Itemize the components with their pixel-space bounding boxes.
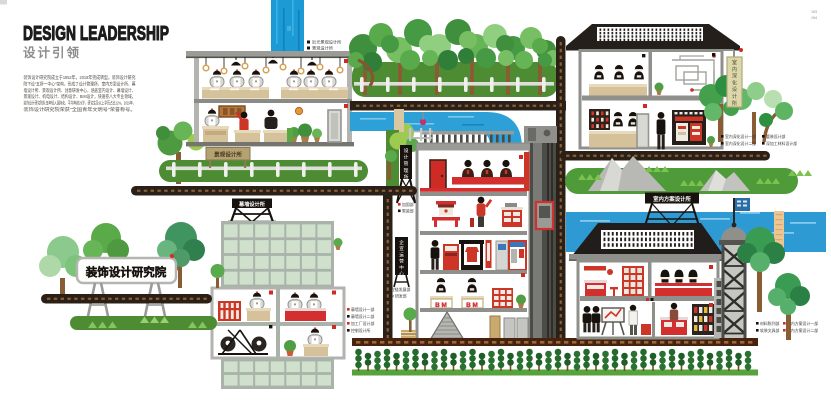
svg-text:计: 计 (404, 154, 409, 161)
svg-text:内: 内 (732, 65, 737, 73)
svg-text:景观设计所: 景观设计所 (213, 151, 242, 159)
svg-text:深: 深 (732, 72, 737, 80)
svg-text:控制设计所: 控制设计所 (351, 328, 371, 333)
svg-text:心: 心 (399, 270, 404, 276)
svg-text:中: 中 (399, 264, 404, 271)
svg-text:室内深化设计一部: 室内深化设计一部 (725, 134, 756, 139)
svg-text:装饰设计研究院成立于1952年，2018年完成转型。装饰设计: 装饰设计研究院成立于1952年，2018年完成转型。装饰设计研究 (24, 74, 136, 81)
svg-text:计: 计 (732, 92, 737, 100)
svg-text:B M: B M (435, 302, 447, 309)
svg-text:景观设计所: 景观设计所 (312, 45, 333, 52)
svg-text:室内方案设计一部: 室内方案设计一部 (787, 321, 818, 326)
svg-text:幕墙设计一部: 幕墙设计一部 (351, 307, 374, 312)
svg-text:设计引领: 设计引领 (23, 45, 81, 60)
svg-text:景观设计、机电设计、结构设计、BIM设计，快速卷八大专业领域: 景观设计、机电设计、结构设计、BIM设计，快速卷八大专业领域。 (24, 93, 136, 100)
svg-text:193: 193 (811, 10, 817, 14)
svg-text:194: 194 (811, 16, 817, 20)
svg-text:警装部: 警装部 (402, 209, 414, 214)
svg-text:加工厂设计部: 加工厂设计部 (351, 321, 374, 326)
svg-text:室: 室 (732, 58, 737, 66)
svg-text:装饰设计研究院队伍年轻入国际化，平均年龄29岁，研究生及以上: 装饰设计研究院队伍年轻入国际化，平均年龄29岁，研究生及以上学历占比12%。20… (24, 100, 136, 107)
svg-text:所: 所 (732, 99, 737, 107)
svg-text:宣: 宣 (399, 245, 404, 252)
svg-text:院下设"五所一中心"架构，形成了设计管理所、室内方案设计所、: 院下设"五所一中心"架构，形成了设计管理所、室内方案设计所、幕 (24, 80, 136, 87)
svg-text:设: 设 (404, 147, 409, 154)
svg-text:装饰设计研究院荣获"全国青年文明号"荣誉称号。: 装饰设计研究院荣获"全国青年文明号"荣誉称号。 (24, 106, 136, 113)
svg-text:室内方案设计二部: 室内方案设计二部 (787, 328, 818, 333)
svg-text:所: 所 (404, 173, 409, 180)
svg-text:管: 管 (404, 160, 409, 167)
svg-text:室内方案设计所: 室内方案设计所 (653, 195, 691, 203)
svg-text:理: 理 (404, 168, 409, 174)
svg-text:幕墙设计所: 幕墙设计所 (238, 200, 266, 208)
svg-text:管装设计部: 管装设计部 (766, 134, 786, 139)
svg-text:深加工材料设计部: 深加工材料设计部 (766, 141, 797, 146)
svg-text:幕墙设计二部: 幕墙设计二部 (351, 314, 374, 319)
svg-text:墙设计所、景观设计所、创意研发中心，涵盖室内设计、幕墙设计、: 墙设计所、景观设计所、创意研发中心，涵盖室内设计、幕墙设计、 (24, 87, 136, 94)
svg-text:软装文具部: 软装文具部 (760, 328, 780, 333)
svg-text:运: 运 (399, 251, 404, 258)
svg-text:近光景观设计所: 近光景观设计所 (312, 39, 341, 46)
svg-text:材料陈列部: 材料陈列部 (760, 321, 780, 326)
svg-text:室内深化设计二部: 室内深化设计二部 (725, 141, 756, 146)
svg-text:加固部: 加固部 (402, 202, 414, 207)
svg-text:B M: B M (466, 302, 478, 309)
svg-text:化: 化 (732, 78, 737, 86)
svg-text:营: 营 (399, 258, 404, 265)
svg-text:企: 企 (399, 239, 404, 245)
svg-text:设: 设 (732, 85, 737, 93)
svg-text:装饰设计研究院: 装饰设计研究院 (85, 265, 167, 279)
svg-text:DESIGN LEADERSHIP: DESIGN LEADERSHIP (23, 22, 169, 45)
